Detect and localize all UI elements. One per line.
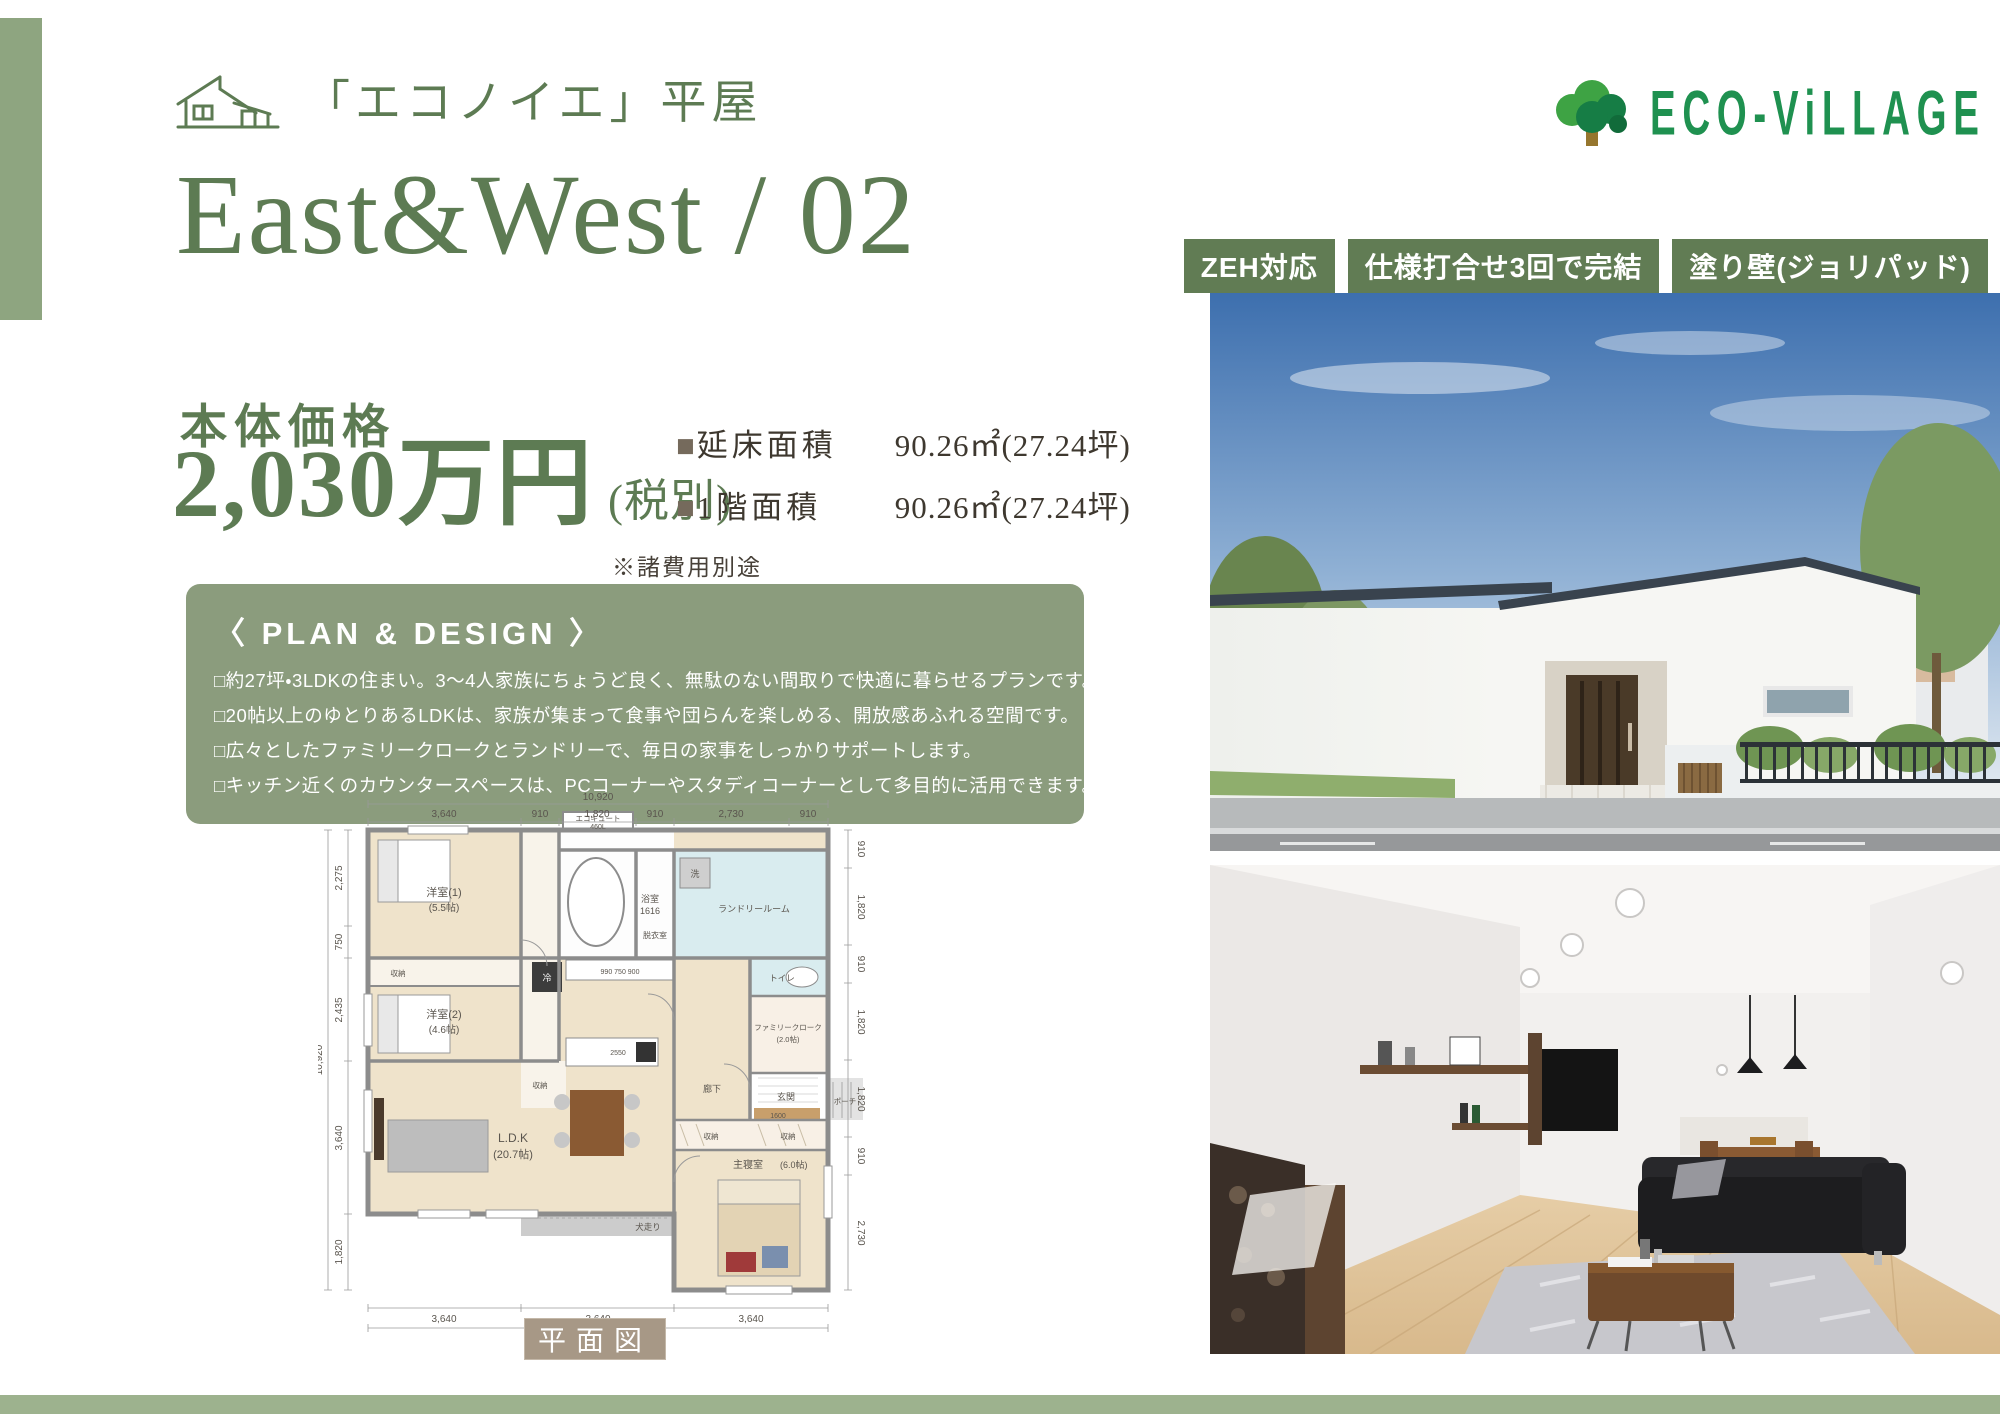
dim-top-seg: 910 xyxy=(532,809,549,820)
area-row-total: ■ 延床面積 90.26㎡(27.24坪) xyxy=(676,420,1131,465)
tv xyxy=(1542,1049,1618,1131)
dim-left-seg: 1,820 xyxy=(334,1239,345,1264)
room-bedroom2: 洋室(2) xyxy=(426,1007,461,1021)
dim-left-seg: 2,275 xyxy=(334,865,345,890)
price-row: 2,030万円 (税別) xyxy=(172,436,732,532)
dim-right-seg: 1,820 xyxy=(855,1086,866,1111)
room-ldk: L.D.K xyxy=(498,1131,528,1145)
room-storage: 収納 xyxy=(704,1131,719,1141)
room-entrance: 玄関 xyxy=(777,1091,795,1102)
dim-left-total: 10,920 xyxy=(318,1044,325,1075)
room-porch: ポーチ xyxy=(834,1097,857,1106)
room-bedroom1-size: (5.5帖) xyxy=(429,901,460,914)
room-family-closet: ファミリークローク xyxy=(754,1023,822,1032)
bottom-accent-bar xyxy=(0,1395,2000,1414)
label-fridge: 冷 xyxy=(542,972,551,983)
dim-top-seg: 1,820 xyxy=(584,809,609,820)
dim-top-total: 10,920 xyxy=(583,792,614,803)
room-storage: 収納 xyxy=(391,968,406,978)
floor-plan-caption: 平面図 xyxy=(524,1318,666,1360)
room-ldk-size: (20.7帖) xyxy=(493,1148,533,1161)
square-bullet-icon: ■ xyxy=(676,428,695,464)
dim-right-seg: 2,730 xyxy=(855,1220,866,1245)
dim-right-seg: 910 xyxy=(855,841,866,858)
area-row-1f: ■ 1階面積 90.26㎡(27.24坪) xyxy=(676,482,1131,527)
price-fee-note: ※諸費用別途 xyxy=(612,548,762,582)
dim-right-seg: 910 xyxy=(855,956,866,973)
dim-left-seg: 2,435 xyxy=(334,997,345,1022)
plan-point: □約27坪・3LDKの住まい。3～4人家族にちょうど良く、無駄のない間取りで快適… xyxy=(214,667,1056,693)
area-value: 90.26㎡(27.24坪) xyxy=(895,482,1131,527)
room-storage: 収納 xyxy=(781,1131,796,1141)
plan-point: □広々としたファミリークロークとランドリーで、毎日の家事をしっかりサポートします… xyxy=(214,737,1056,763)
badge-meetings: 仕様打合せ3回で完結 xyxy=(1348,239,1660,293)
area-label: 1階面積 xyxy=(697,482,895,527)
dim-top-seg: 3,640 xyxy=(431,809,456,820)
feature-badges: ZEH対応 仕様打合せ3回で完結 塗り壁(ジョリパッド) xyxy=(1150,239,1988,293)
room-hall: 廊下 xyxy=(703,1083,721,1094)
room-bath-size: 1616 xyxy=(640,906,660,916)
brand-row: 「エコノイエ」平屋 xyxy=(176,66,763,132)
plan-design-points: □約27坪・3LDKの住まい。3～4人家族にちょうど良く、無駄のない間取りで快適… xyxy=(214,667,1056,798)
room-washer: 洗 xyxy=(690,868,699,879)
label-hall-dim: 1600 xyxy=(770,1113,786,1120)
tv-panel xyxy=(1528,1033,1542,1145)
label-kitchen-dim: 2550 xyxy=(610,1050,626,1057)
dim-bottom-seg: 3,640 xyxy=(431,1314,456,1325)
brand-label: 「エコノイエ」平屋 xyxy=(304,66,763,132)
left-accent-bar xyxy=(0,18,42,320)
dim-top-seg: 910 xyxy=(800,809,817,820)
interior-photo xyxy=(1210,865,2000,1354)
dim-left-seg: 3,640 xyxy=(334,1125,345,1150)
room-master-size: (6.0帖) xyxy=(780,1159,808,1170)
dim-right-seg: 1,820 xyxy=(855,1009,866,1034)
flyer-page: 「エコノイエ」平屋 East&West / 02 ECO-ViLLAGE ZEH… xyxy=(0,0,2000,1414)
dim-top-seg: 910 xyxy=(647,809,664,820)
logo-wordmark: ECO-ViLLAGE xyxy=(1650,77,1986,150)
plan-point: □20帖以上のゆとりあるLDKは、家族が集まって食事や団らんを楽しめる、開放感あ… xyxy=(214,702,1056,728)
sofa xyxy=(1638,1157,1906,1265)
slit-window xyxy=(1765,688,1851,715)
room-bedroom2-size: (4.6帖) xyxy=(429,1023,460,1036)
square-bullet-icon: ■ xyxy=(676,490,695,526)
tree-icon xyxy=(1548,76,1640,152)
area-label: 延床面積 xyxy=(697,420,895,465)
model-title: East&West / 02 xyxy=(176,152,917,277)
room-storage: 収納 xyxy=(533,1080,548,1090)
price-amount: 2,030万円 xyxy=(172,436,594,532)
house-icon xyxy=(176,67,280,131)
badge-wall: 塗り壁(ジョリパッド) xyxy=(1672,239,1988,293)
area-value: 90.26㎡(27.24坪) xyxy=(895,420,1131,465)
road xyxy=(1210,798,2000,851)
floor-plan-drawing: 洋室(1) (5.5帖) 洋室(2) (4.6帖) L.D.K (20.7帖) … xyxy=(318,790,878,1362)
room-laundry: ランドリールーム xyxy=(718,904,790,914)
dim-left-seg: 750 xyxy=(334,933,345,950)
label-counter-dims: 990 750 900 xyxy=(601,969,640,976)
company-logo: ECO-ViLLAGE xyxy=(1548,76,2000,152)
exterior-photo xyxy=(1210,293,2000,851)
room-bedroom1: 洋室(1) xyxy=(426,885,461,899)
room-dressing: 脱衣室 xyxy=(643,930,667,940)
room-bath: 浴室 xyxy=(641,893,659,904)
area-list: ■ 延床面積 90.26㎡(27.24坪) ■ 1階面積 90.26㎡(27.2… xyxy=(676,420,1131,527)
dim-right-seg: 910 xyxy=(855,1148,866,1165)
label-ecocute-size: 460L xyxy=(590,824,606,831)
dim-right-seg: 1,820 xyxy=(855,894,866,919)
dim-top-seg: 2,730 xyxy=(718,809,743,820)
plan-design-heading: 〈 PLAN & DESIGN 〉 xyxy=(214,608,1056,653)
room-family-closet-size: (2.0帖) xyxy=(777,1034,800,1044)
dim-bottom-seg: 3,640 xyxy=(738,1314,763,1325)
plan-design-panel: 〈 PLAN & DESIGN 〉 □約27坪・3LDKの住まい。3～4人家族に… xyxy=(186,584,1084,824)
label-dog-run: 犬走り xyxy=(635,1222,661,1232)
room-master: 主寝室 xyxy=(733,1158,763,1171)
badge-zeh: ZEH対応 xyxy=(1184,239,1335,293)
room-toilet: トイレ xyxy=(769,973,795,983)
